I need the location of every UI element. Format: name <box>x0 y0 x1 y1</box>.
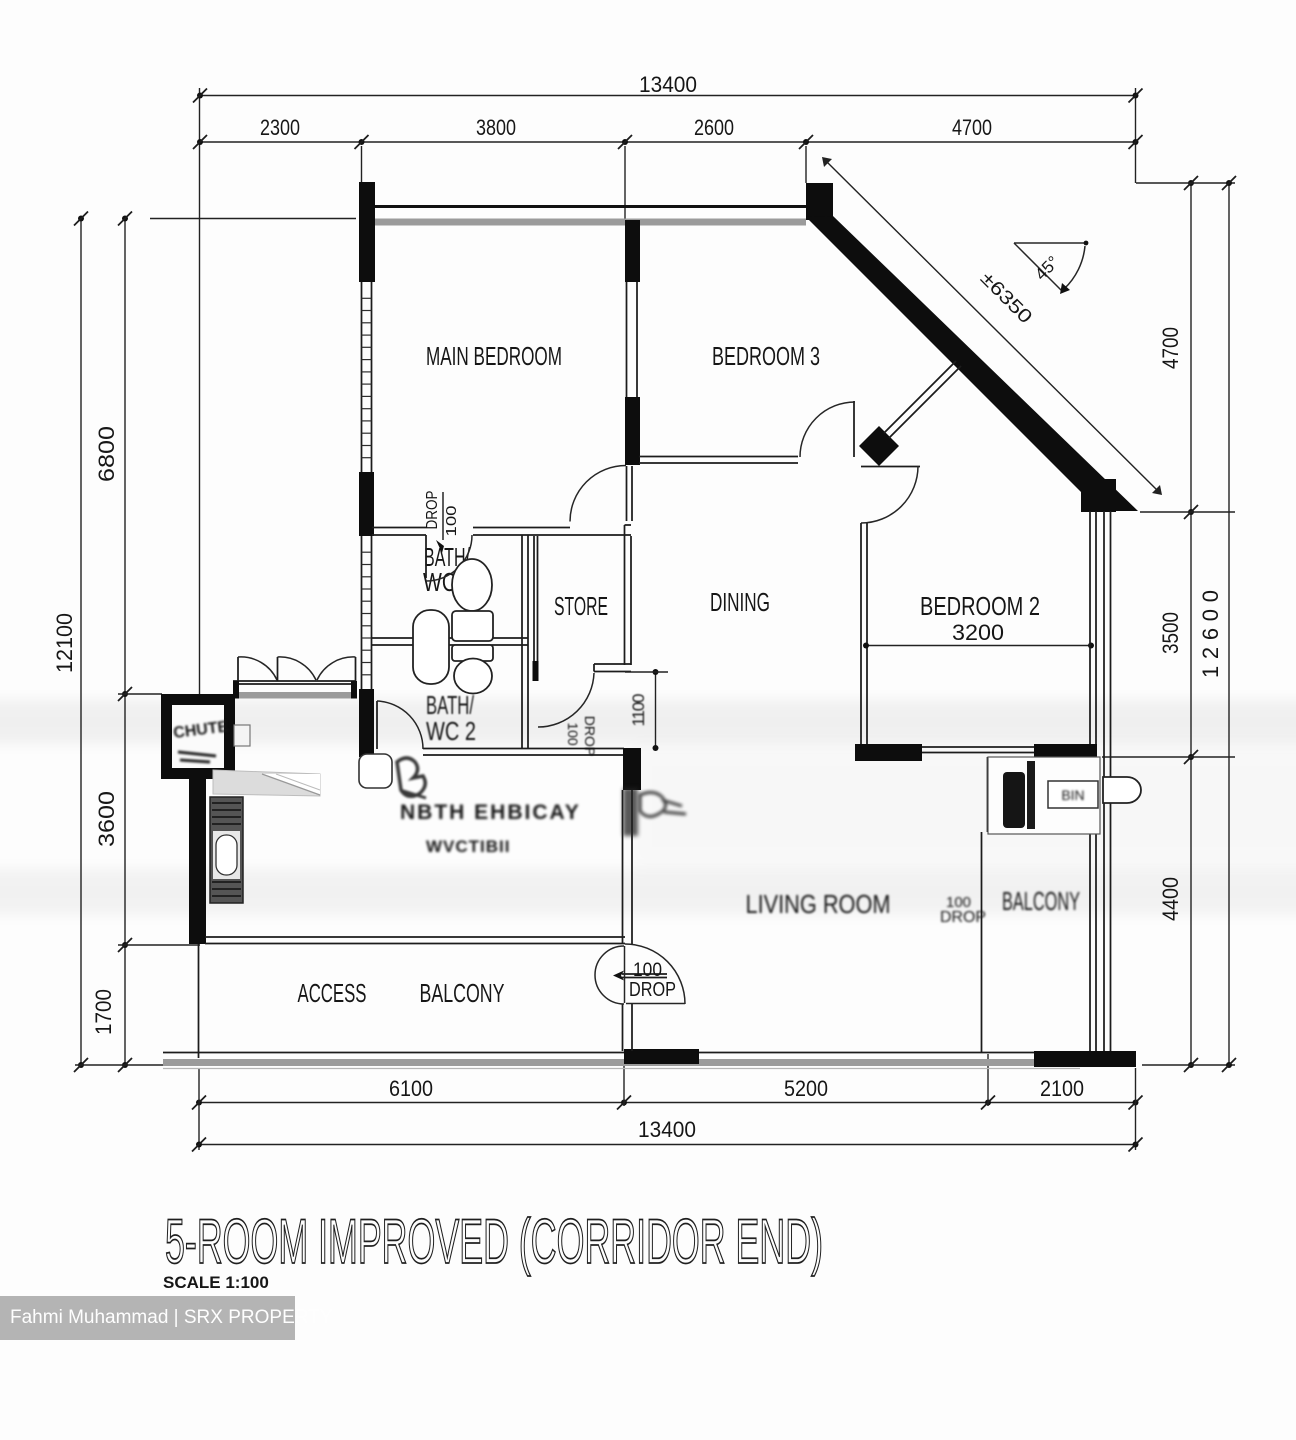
svg-text:2100: 2100 <box>1040 1076 1084 1101</box>
svg-text:5-ROOM IMPROVED (CORRIDOR END): 5-ROOM IMPROVED (CORRIDOR END) <box>165 1207 823 1277</box>
svg-text:4700: 4700 <box>1158 327 1183 369</box>
svg-text:MAIN BEDROOM: MAIN BEDROOM <box>426 341 562 371</box>
svg-text:DROP: DROP <box>424 491 441 530</box>
svg-text:3800: 3800 <box>476 115 516 140</box>
svg-text:BIN: BIN <box>1061 787 1084 803</box>
svg-text:NBTH EHBICAY: NBTH EHBICAY <box>400 801 581 824</box>
svg-text:100: 100 <box>443 506 460 537</box>
svg-text:100: 100 <box>633 960 662 981</box>
svg-text:ACCESS: ACCESS <box>298 978 367 1008</box>
svg-text:100: 100 <box>565 722 581 746</box>
svg-text:5200: 5200 <box>784 1076 828 1101</box>
svg-text:2300: 2300 <box>260 115 300 140</box>
svg-text:1100: 1100 <box>629 694 648 727</box>
svg-text:4700: 4700 <box>952 115 992 140</box>
svg-text:12600: 12600 <box>1198 590 1223 678</box>
svg-text:LIVING ROOM: LIVING ROOM <box>746 889 891 919</box>
svg-text:DROP: DROP <box>582 716 598 756</box>
svg-text:3200: 3200 <box>952 620 1004 645</box>
svg-text:WC 2: WC 2 <box>426 716 476 746</box>
svg-text:12100: 12100 <box>52 613 77 673</box>
svg-text:SCALE 1:100: SCALE 1:100 <box>163 1273 269 1292</box>
svg-text:WVCTIBII: WVCTIBII <box>426 837 511 856</box>
svg-text:13400: 13400 <box>638 1117 696 1142</box>
svg-text:BEDROOM 3: BEDROOM 3 <box>712 341 820 371</box>
svg-text:BEDROOM 2: BEDROOM 2 <box>920 591 1040 621</box>
svg-text:3500: 3500 <box>1158 612 1183 654</box>
svg-text:1700: 1700 <box>91 989 116 1035</box>
svg-text:13400: 13400 <box>639 72 697 97</box>
svg-text:DROP: DROP <box>629 979 676 1001</box>
svg-text:6800: 6800 <box>94 426 119 482</box>
svg-text:DINING: DINING <box>710 587 770 617</box>
svg-text:6100: 6100 <box>389 1076 433 1101</box>
svg-text:STORE: STORE <box>554 591 608 621</box>
svg-text:2600: 2600 <box>694 115 734 140</box>
svg-text:BALCONY: BALCONY <box>420 978 505 1008</box>
svg-text:BALCONY: BALCONY <box>1002 886 1080 916</box>
svg-text:45°: 45° <box>1031 252 1063 284</box>
svg-text:DROP: DROP <box>940 909 986 926</box>
svg-text:3600: 3600 <box>94 791 119 847</box>
svg-text:4400: 4400 <box>1158 877 1183 921</box>
